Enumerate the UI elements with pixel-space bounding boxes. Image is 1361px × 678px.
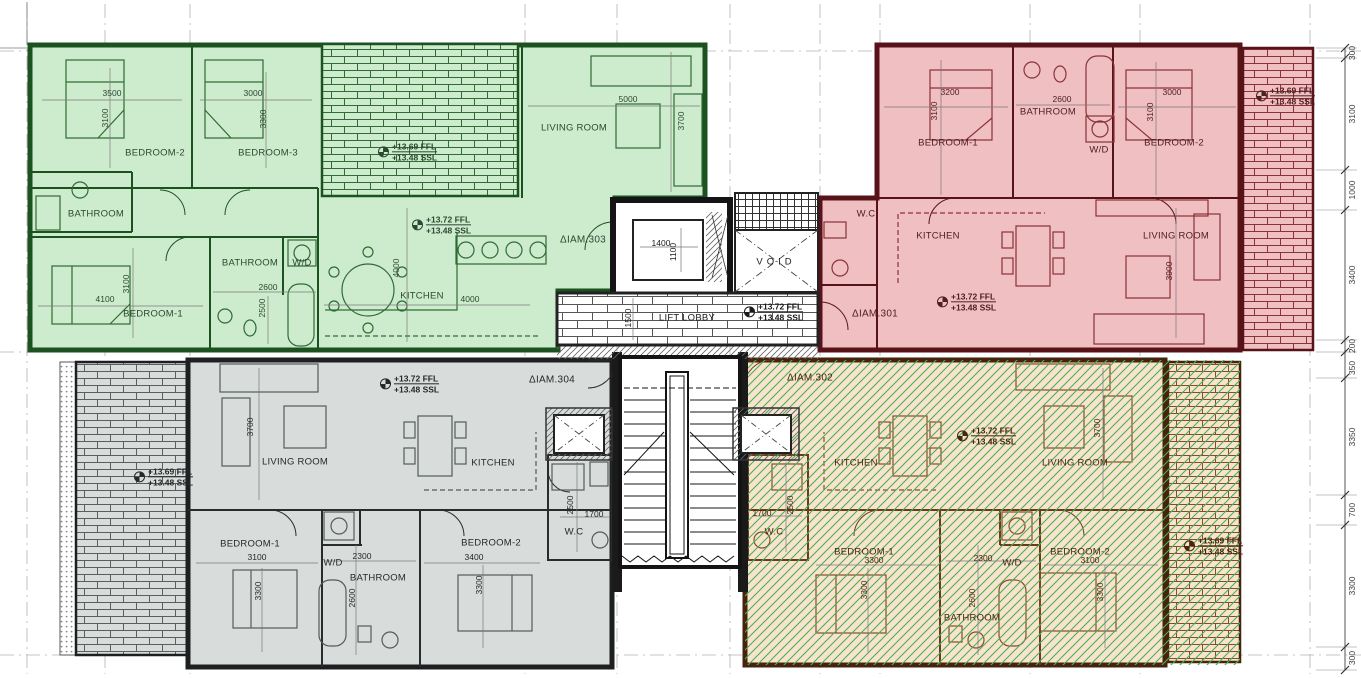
room-label-301-wd: W/D bbox=[1089, 145, 1108, 156]
room-label-304-bedroom1: BEDROOM-1 bbox=[220, 539, 280, 550]
dim-304-living-h: 3700 bbox=[245, 418, 255, 437]
dim-302-wc-w: 1700 bbox=[753, 508, 772, 518]
dim-302-bedroom2-h: 3300 bbox=[1095, 583, 1105, 602]
unit-id-302: ΔIAM.302 bbox=[787, 373, 833, 384]
core-shaft-right bbox=[733, 408, 799, 460]
dim-302-living-h: 3700 bbox=[1092, 419, 1102, 438]
room-label-302-wd: W/D bbox=[1002, 558, 1021, 569]
level-marker-304-balcony: +13.69 FFL+13.48 SSL bbox=[134, 466, 193, 487]
dim-302-bedroom2-w: 3100 bbox=[1081, 555, 1100, 565]
room-label-302-kitchen: KITCHEN bbox=[834, 458, 877, 469]
level-target-icon bbox=[1256, 91, 1267, 102]
dim-302-bathroom-h: 2600 bbox=[967, 589, 977, 608]
dim-303-kitchen-h: 4000 bbox=[391, 259, 401, 278]
dim-304-bedroom1-h: 3300 bbox=[253, 582, 263, 601]
dim-303-bedroom3-h: 3300 bbox=[258, 110, 268, 129]
room-label-303-bathroom-top: BATHROOM bbox=[68, 209, 124, 220]
room-label-302-bathroom: BATHROOM bbox=[944, 613, 1000, 624]
room-label-301-bedroom1: BEDROOM-1 bbox=[918, 138, 978, 149]
room-label-303-wd: W/D bbox=[292, 258, 311, 269]
level-marker-303-balcony: +13.69 FFL+13.48 SSL bbox=[378, 141, 437, 162]
level-target-icon bbox=[1184, 541, 1195, 552]
dim-303-living-w: 5000 bbox=[619, 94, 638, 104]
dim-303-kitchen-w: 4000 bbox=[461, 294, 480, 304]
dim-301-bathroom-w: 2600 bbox=[1053, 94, 1072, 104]
dim-right-9: 300 bbox=[1347, 651, 1357, 665]
level-target-icon bbox=[134, 472, 145, 483]
level-marker-301-balcony: +13.69 FFL+13.48 SSL bbox=[1256, 85, 1315, 106]
dim-304-wc-w: 1700 bbox=[585, 509, 604, 519]
room-label-303-bedroom3: BEDROOM-3 bbox=[238, 148, 298, 159]
dim-301-bedroom2-w: 3000 bbox=[1163, 87, 1182, 97]
room-label-303-living: LIVING ROOM bbox=[541, 123, 607, 134]
dim-304-bedroom1-w: 3100 bbox=[248, 552, 267, 562]
dim-303-bedroom3-w: 3000 bbox=[244, 88, 263, 98]
level-marker-304: +13.72 FFL+13.48 SSL bbox=[380, 373, 439, 394]
room-label-302-living: LIVING ROOM bbox=[1042, 458, 1108, 469]
level-target-icon bbox=[380, 379, 391, 390]
dim-303-bedroom2-h: 3100 bbox=[100, 109, 110, 128]
room-label-303-bathroom: BATHROOM bbox=[222, 258, 278, 269]
room-label-301-wc: W.C bbox=[857, 209, 876, 220]
apartment-304-plan bbox=[60, 360, 616, 667]
dim-right-8: 3300 bbox=[1347, 577, 1357, 596]
dim-303-bedroom2-w: 3500 bbox=[103, 88, 122, 98]
dim-right-3: 3400 bbox=[1347, 266, 1357, 285]
core-shaft-left bbox=[546, 408, 612, 460]
level-target-icon bbox=[378, 147, 389, 158]
dim-302-bedroom1-h: 3300 bbox=[859, 581, 869, 600]
room-label-304-kitchen: KITCHEN bbox=[471, 458, 514, 469]
dim-304-wd-w: 2300 bbox=[353, 551, 372, 561]
dim-303-bathroom-w: 2600 bbox=[259, 282, 278, 292]
room-label-304-bedroom2: BEDROOM-2 bbox=[461, 538, 521, 549]
apartment-301-plan bbox=[820, 45, 1313, 350]
level-target-icon bbox=[937, 297, 948, 308]
dim-303-living-h: 3700 bbox=[676, 112, 686, 131]
dim-302-bedroom1-w: 3300 bbox=[865, 555, 884, 565]
room-label-301-bathroom: BATHROOM bbox=[1020, 107, 1076, 118]
dim-302-wc-h: 2500 bbox=[785, 496, 795, 515]
core-stairs bbox=[620, 357, 740, 567]
dim-right-7: 700 bbox=[1347, 503, 1357, 517]
room-label-304-wc: W.C bbox=[565, 527, 584, 538]
dim-lift-depth: 1100 bbox=[668, 243, 678, 261]
lift-lobby-label: LIFT LOBBY bbox=[659, 313, 715, 324]
dim-301-bedroom2-h: 3100 bbox=[1145, 103, 1155, 122]
room-label-304-living: LIVING ROOM bbox=[262, 457, 328, 468]
room-label-301-living: LIVING ROOM bbox=[1143, 231, 1209, 242]
floor-plan-drawing bbox=[0, 0, 1361, 678]
level-marker-lobby: +13.72 FFL+13.48 SSL bbox=[744, 301, 803, 322]
unit-id-303: ΔIAM.303 bbox=[560, 235, 606, 246]
dim-303-bedroom1-h: 3100 bbox=[121, 275, 131, 294]
level-target-icon bbox=[744, 307, 755, 318]
room-label-302-wc: W.C bbox=[765, 527, 784, 538]
level-target-icon bbox=[957, 431, 968, 442]
dim-right-2: 1000 bbox=[1347, 181, 1357, 200]
level-marker-302: +13.72 FFL+13.48 SSL bbox=[957, 425, 1016, 446]
level-marker-303: +13.72 FFL+13.48 SSL bbox=[412, 214, 471, 235]
core-roof-hatch bbox=[735, 193, 818, 230]
dim-right-5: 350 bbox=[1347, 361, 1357, 375]
room-label-304-wd: W/D bbox=[323, 558, 342, 569]
dim-304-bedroom2-h: 3300 bbox=[474, 576, 484, 595]
room-label-303-bedroom2: BEDROOM-2 bbox=[125, 148, 185, 159]
room-label-301-kitchen: KITCHEN bbox=[916, 231, 959, 242]
dim-lobby-depth: 1500 bbox=[623, 309, 633, 328]
dim-303-bathroom-h: 2500 bbox=[257, 299, 267, 318]
dim-303-bedroom1-w: 4100 bbox=[96, 294, 115, 304]
level-target-icon bbox=[412, 220, 423, 231]
dim-right-1: 3100 bbox=[1347, 105, 1357, 124]
dim-right-4: 200 bbox=[1347, 339, 1357, 353]
dim-304-wc-h: 2500 bbox=[565, 496, 575, 515]
dim-right-6: 3350 bbox=[1347, 428, 1357, 447]
void-label: VOID bbox=[756, 257, 795, 268]
dim-right-0: 300 bbox=[1347, 46, 1357, 60]
level-marker-301: +13.72 FFL+13.48 SSL bbox=[937, 291, 996, 312]
dim-304-bedroom2-w: 3400 bbox=[465, 552, 484, 562]
dim-301-bedroom1-w: 3200 bbox=[941, 87, 960, 97]
room-label-303-bedroom1: BEDROOM-1 bbox=[123, 309, 183, 320]
dim-304-bathroom-h: 2600 bbox=[347, 589, 357, 608]
dim-301-living-h: 3900 bbox=[1164, 262, 1174, 281]
room-label-303-kitchen: KITCHEN bbox=[400, 291, 443, 302]
dim-301-bedroom1-h: 3100 bbox=[929, 102, 939, 121]
dim-302-wd-w: 2300 bbox=[974, 553, 993, 563]
room-label-301-bedroom2: BEDROOM-2 bbox=[1144, 138, 1204, 149]
room-label-304-bathroom: BATHROOM bbox=[350, 573, 406, 584]
level-marker-302-balcony: +13.69 FFL+13.48 SSL bbox=[1184, 535, 1243, 556]
floor-plan-page: BEDROOM-2 3500 3100 BEDROOM-3 3000 3300 … bbox=[0, 0, 1361, 678]
unit-id-301: ΔIAM.301 bbox=[852, 309, 898, 320]
unit-id-304: ΔIAM.304 bbox=[529, 375, 575, 386]
